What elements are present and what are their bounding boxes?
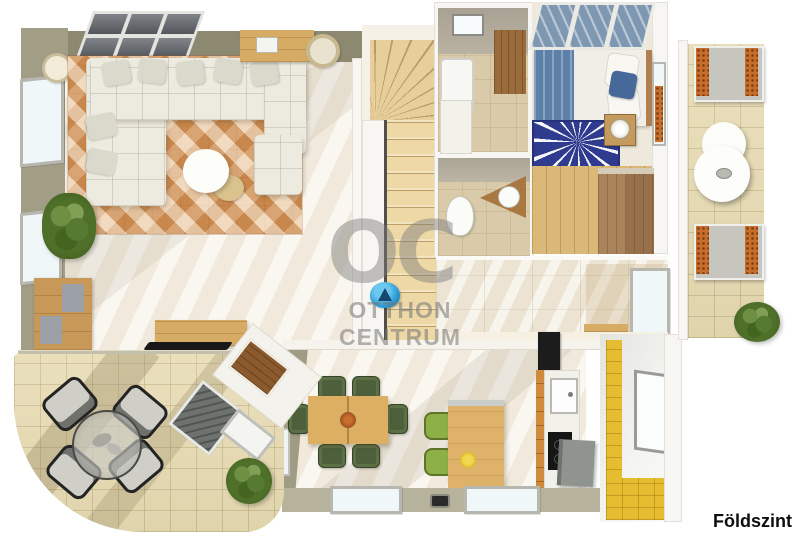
bath-wc-block xyxy=(434,2,534,258)
round-wall-mirror xyxy=(306,34,340,68)
kitchen-window xyxy=(464,486,540,514)
bathroom xyxy=(438,8,528,152)
living-room xyxy=(18,25,370,362)
wardrobe xyxy=(598,168,654,254)
ottoman-pouf xyxy=(254,135,302,195)
potted-plant xyxy=(42,193,96,259)
skylight-pane-blue xyxy=(570,5,614,47)
balcony-bush xyxy=(734,302,780,342)
corner-sink xyxy=(498,186,520,208)
tall-black-cabinet xyxy=(538,332,560,372)
skylight-pane-blue xyxy=(532,5,576,47)
storage-cabinet xyxy=(34,278,92,350)
skylight-pane xyxy=(116,38,156,58)
floor-plan-render: OC OTTHON CENTRUM Földszint xyxy=(0,0,800,542)
bedroom-curtain xyxy=(655,86,663,142)
sofa-pillow xyxy=(100,59,132,87)
desk-item xyxy=(256,37,278,53)
hallway-sill xyxy=(584,324,628,332)
skylight-pane xyxy=(88,14,128,34)
dining-chair xyxy=(386,404,408,434)
wc-room xyxy=(438,158,530,256)
wc-sloped-ceiling xyxy=(438,158,530,182)
cabinet-panel xyxy=(62,284,84,312)
balcony-armchair xyxy=(694,224,764,280)
stair-flight xyxy=(386,120,438,344)
fruit-bowl xyxy=(340,412,356,428)
living-room-skylight xyxy=(75,11,205,61)
dining-chair xyxy=(352,444,380,468)
armchair-side xyxy=(745,226,758,274)
hallway-window xyxy=(630,268,670,338)
stair-hall xyxy=(362,25,440,355)
sofa-pillow xyxy=(212,57,243,85)
toilet xyxy=(446,196,474,236)
balcony-left-wall xyxy=(678,40,688,340)
coffee-table xyxy=(183,149,229,193)
faucet xyxy=(568,392,573,397)
side-room-window xyxy=(634,370,668,455)
bed-blue-pillow xyxy=(608,70,638,100)
stair-winders xyxy=(370,40,438,122)
sofa-pillow xyxy=(248,59,279,87)
skylight-pane xyxy=(124,14,164,34)
bed-blue-throw xyxy=(534,50,574,126)
kitchen-sink xyxy=(550,378,578,414)
table-lamp xyxy=(610,119,630,139)
kitchen-dining-room xyxy=(272,340,602,516)
bathroom-vanity xyxy=(440,100,472,154)
skylight-pane xyxy=(161,14,201,34)
dining-chair xyxy=(318,444,346,468)
skylight-pane-blue xyxy=(608,5,652,47)
skylight-pane xyxy=(79,38,119,58)
cabinet-panel xyxy=(40,316,62,344)
bathroom-cabinet xyxy=(494,30,526,94)
nightstand xyxy=(604,114,636,146)
bathroom-skylight xyxy=(452,14,484,36)
stair-side-wall xyxy=(362,120,386,344)
patio-glass-table xyxy=(72,410,142,480)
table-centerpiece xyxy=(105,441,124,458)
armchair-side xyxy=(696,48,709,96)
range-hood xyxy=(557,439,595,487)
living-room-right-wall xyxy=(352,58,362,350)
bedroom xyxy=(532,2,668,254)
stair-railing xyxy=(384,120,387,344)
dining-window xyxy=(330,486,402,514)
balcony xyxy=(678,40,772,342)
patio-bush xyxy=(226,458,272,504)
sofa-pillow xyxy=(85,148,119,177)
skylight-pane xyxy=(152,38,192,58)
side-room-right-wall xyxy=(664,334,682,522)
side-room xyxy=(600,334,682,522)
armchair-side xyxy=(745,48,758,96)
kitchen-island xyxy=(448,400,504,492)
bedroom-skylight xyxy=(528,2,656,50)
patio xyxy=(10,346,292,542)
sofa-pillow xyxy=(137,57,168,84)
living-room-window-upper xyxy=(20,75,64,168)
balcony-armchair xyxy=(694,46,764,102)
yellow-plate xyxy=(460,452,476,468)
sofa-pillow xyxy=(175,60,205,87)
dining-table xyxy=(308,396,388,444)
armchair-side xyxy=(696,226,709,274)
balcony-round-table xyxy=(694,146,750,202)
table-decor xyxy=(716,168,732,179)
hallway xyxy=(436,256,668,344)
floor-label: Földszint xyxy=(688,511,792,532)
wall-vent xyxy=(430,494,450,508)
